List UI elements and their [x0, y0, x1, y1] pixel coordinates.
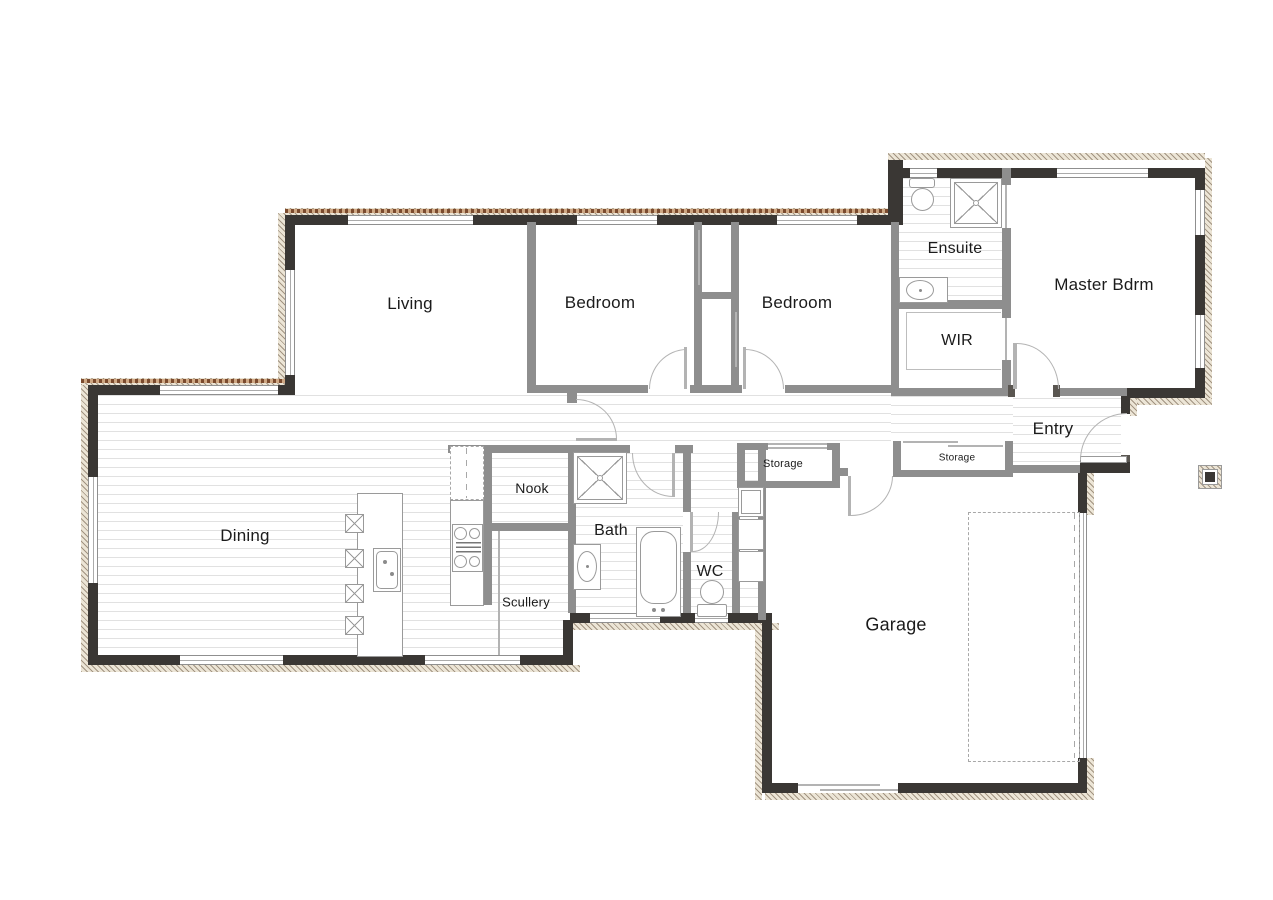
storage-sliding-door	[768, 443, 827, 445]
fridge-door-split	[466, 448, 467, 498]
window	[425, 655, 520, 665]
robe-sliding-door	[698, 230, 700, 285]
garage-door-panel	[820, 789, 900, 791]
fridge	[450, 446, 484, 500]
basin-plug	[586, 565, 589, 568]
window	[1079, 513, 1087, 758]
ensuite-sliding-door	[1005, 185, 1007, 228]
window	[88, 477, 98, 583]
interior-wall	[1002, 168, 1011, 185]
dryer	[738, 551, 764, 582]
bar-stool	[345, 616, 364, 635]
interior-wall	[840, 468, 848, 476]
floor-hallway-east	[891, 396, 1013, 441]
window	[1195, 315, 1205, 368]
room-label-living: Living	[387, 294, 433, 314]
interior-wall	[785, 385, 899, 393]
cladding-strip	[765, 793, 1094, 800]
bath-tap	[652, 608, 656, 612]
car-space	[968, 512, 1080, 762]
exterior-wall	[895, 168, 910, 178]
bathtub-inner	[640, 531, 677, 604]
room-label-entry: Entry	[1033, 419, 1074, 439]
garage-door-panel	[798, 784, 880, 786]
interior-wall	[891, 222, 899, 388]
room-label-nook: Nook	[515, 480, 548, 496]
window	[777, 215, 857, 225]
exterior-wall	[1195, 168, 1205, 190]
exterior-wall	[762, 618, 772, 793]
interior-wall	[683, 453, 691, 512]
window	[285, 270, 295, 375]
exterior-wall	[88, 583, 98, 665]
door-arc-master	[1017, 343, 1059, 389]
cladding-strip	[1205, 158, 1212, 405]
robe-sliding-door	[735, 312, 737, 367]
window	[1057, 168, 1148, 178]
porch-column-core	[1205, 472, 1215, 482]
window	[577, 215, 657, 225]
exterior-wall	[88, 385, 98, 477]
shower-rose	[973, 200, 979, 206]
wir-sliding-door	[1005, 318, 1007, 360]
room-label-bedroom-right: Bedroom	[762, 293, 832, 313]
exterior-wall	[1078, 473, 1087, 513]
exterior-wall	[88, 655, 180, 665]
exterior-wall	[657, 215, 777, 225]
shower-rose	[597, 475, 603, 481]
cladding-strip	[81, 385, 88, 672]
toilet-bowl	[700, 580, 724, 604]
exterior-wall	[570, 613, 590, 623]
burner	[454, 555, 467, 568]
bath-tap	[661, 608, 665, 612]
cladding-strip	[278, 213, 285, 395]
sink-tap	[383, 560, 387, 564]
interior-wall	[527, 385, 648, 393]
window	[160, 385, 278, 395]
cladding-strip	[1087, 758, 1094, 800]
interior-wall	[694, 292, 739, 299]
interior-wall	[675, 445, 693, 453]
cladding-strip	[1127, 398, 1212, 405]
room-label-bedroom-left: Bedroom	[565, 293, 635, 313]
interior-wall	[1013, 465, 1080, 473]
room-label-master: Master Bdrm	[1054, 275, 1154, 295]
exterior-wall	[1080, 462, 1130, 473]
window	[348, 215, 473, 225]
toilet-cistern	[697, 604, 727, 617]
interior-wall	[893, 470, 1013, 477]
storage-sliding-door	[903, 441, 958, 443]
burner	[469, 528, 480, 539]
cladding-strip	[1130, 398, 1137, 416]
exterior-wall	[1127, 388, 1205, 398]
toilet-bowl	[911, 188, 934, 211]
cladding-strip	[755, 620, 762, 800]
interior-wall	[683, 552, 691, 613]
room-label-garage: Garage	[865, 615, 926, 636]
cladding-strip	[81, 665, 580, 672]
room-label-storage-entry: Storage	[939, 453, 975, 464]
door-arc-bedroom-right	[745, 349, 784, 389]
basin-plug	[919, 289, 922, 292]
grill	[456, 542, 481, 553]
bar-stool	[345, 514, 364, 533]
exterior-wall	[1121, 396, 1130, 414]
window	[180, 655, 283, 665]
exterior-wall	[285, 218, 295, 270]
exterior-wall	[520, 655, 573, 665]
washing-machine	[738, 519, 764, 550]
room-label-wir: WIR	[941, 332, 973, 350]
brick-edge	[81, 379, 285, 383]
room-label-bath: Bath	[594, 522, 628, 540]
room-label-ensuite: Ensuite	[928, 240, 983, 258]
exterior-wall	[898, 783, 1087, 793]
scullery-partition	[498, 531, 500, 655]
interior-wall	[527, 222, 536, 393]
brick-edge	[285, 209, 903, 213]
cladding-strip	[888, 153, 1205, 160]
door-arc-garage	[851, 476, 893, 516]
toilet-cistern	[909, 178, 935, 188]
room-label-wc: WC	[696, 563, 723, 581]
sink-tap	[390, 572, 394, 576]
storage-sliding-door	[948, 445, 1003, 447]
interior-wall	[1002, 228, 1011, 318]
floor-plan: Living Bedroom Bedroom Ensuite Master Bd…	[0, 0, 1273, 900]
exterior-wall	[285, 375, 295, 395]
interior-wall	[483, 523, 570, 531]
storage-sliding-door	[768, 447, 827, 449]
exterior-wall	[473, 215, 577, 225]
room-label-dining: Dining	[220, 526, 269, 546]
cladding-strip	[563, 623, 779, 630]
bar-stool	[345, 549, 364, 568]
room-label-scullery: Scullery	[502, 595, 550, 610]
exterior-wall	[1195, 235, 1205, 315]
exterior-wall	[937, 168, 1057, 178]
laundry-tub-bowl	[741, 490, 761, 514]
island-sink-bowl	[376, 551, 398, 589]
room-label-storage-hall: Storage	[763, 458, 803, 470]
bar-stool	[345, 584, 364, 603]
interior-wall	[731, 222, 739, 393]
window	[910, 168, 937, 178]
window	[1195, 190, 1205, 235]
interior-wall	[1060, 388, 1127, 396]
exterior-wall	[88, 385, 160, 395]
burner	[454, 527, 467, 540]
interior-wall	[891, 388, 1013, 396]
exterior-wall	[283, 655, 425, 665]
burner	[469, 556, 480, 567]
door-arc-bedroom-left	[649, 349, 687, 389]
